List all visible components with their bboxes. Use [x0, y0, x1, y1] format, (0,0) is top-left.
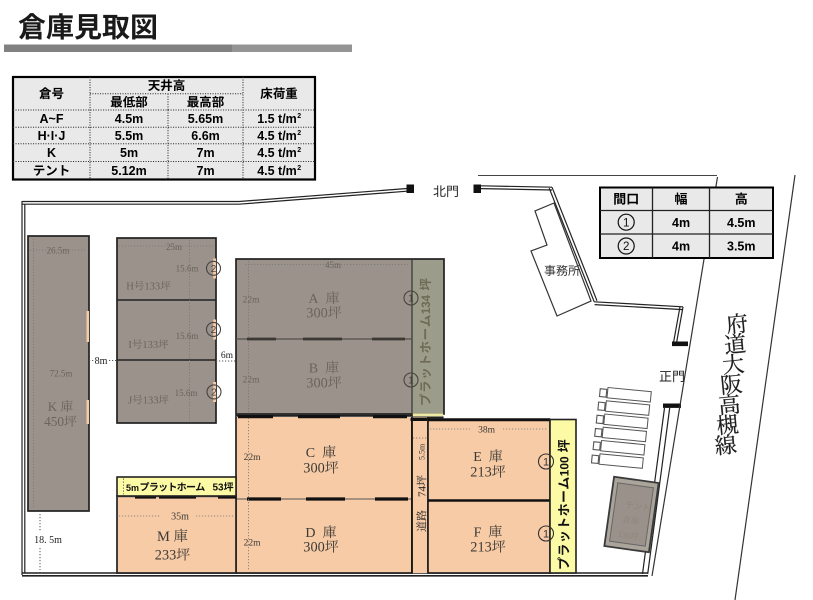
svg-text:233: 233 [155, 548, 176, 564]
svg-text:450: 450 [44, 414, 64, 429]
svg-text:M: M [157, 529, 170, 545]
svg-text:4.5m: 4.5m [727, 216, 756, 230]
svg-text:100: 100 [558, 456, 572, 476]
svg-text:8m: 8m [95, 356, 108, 367]
svg-text:35m: 35m [171, 512, 189, 523]
svg-text:38m: 38m [478, 426, 496, 436]
svg-text:4.5 t/m: 4.5 t/m [257, 164, 297, 178]
svg-text:15.6m: 15.6m [175, 388, 198, 398]
svg-text:I: I [128, 340, 132, 351]
svg-text:3.5m: 3.5m [727, 240, 756, 254]
svg-text:2: 2 [297, 130, 301, 137]
svg-text:15.6m: 15.6m [176, 264, 199, 274]
svg-text:300: 300 [303, 461, 324, 477]
svg-text:4.5m: 4.5m [115, 112, 144, 126]
svg-text:2: 2 [297, 113, 301, 120]
svg-text:5m: 5m [126, 483, 139, 493]
svg-text:4m: 4m [672, 216, 690, 230]
svg-text:H·I·J: H·I·J [38, 129, 66, 143]
svg-text:6m: 6m [221, 351, 234, 361]
svg-text:J: J [128, 396, 132, 407]
svg-text:22m: 22m [243, 376, 261, 386]
svg-text:130: 130 [617, 529, 631, 541]
svg-text:213: 213 [470, 465, 491, 481]
svg-text:22m: 22m [244, 539, 262, 549]
svg-text:5.5m: 5.5m [418, 443, 427, 460]
svg-text:A~F: A~F [40, 112, 64, 126]
svg-text:300: 300 [306, 306, 327, 322]
svg-text:134: 134 [421, 294, 433, 314]
svg-text:53: 53 [213, 483, 225, 494]
svg-text:1: 1 [623, 216, 629, 229]
svg-text:H: H [126, 282, 134, 293]
svg-text:300: 300 [303, 540, 324, 556]
svg-text:2: 2 [297, 147, 301, 154]
svg-text:25m: 25m [166, 242, 182, 252]
svg-text:133: 133 [142, 340, 158, 351]
svg-text:7m: 7m [197, 164, 215, 178]
svg-text:2: 2 [297, 165, 301, 172]
svg-text:133: 133 [143, 396, 159, 407]
svg-text:1: 1 [408, 294, 414, 305]
svg-text:K: K [47, 146, 56, 160]
svg-text:4.5 t/m: 4.5 t/m [257, 146, 297, 160]
svg-text:26.5m: 26.5m [47, 246, 70, 256]
svg-text:15.6m: 15.6m [176, 331, 199, 341]
svg-text:5.65m: 5.65m [188, 112, 223, 126]
svg-text:1: 1 [543, 528, 549, 540]
svg-text:1: 1 [408, 376, 414, 387]
svg-text:5.12m: 5.12m [111, 164, 146, 178]
svg-text:4.5 t/m: 4.5 t/m [257, 129, 297, 143]
svg-text:45m: 45m [325, 260, 341, 270]
svg-text:2: 2 [211, 264, 217, 275]
svg-text:1: 1 [543, 456, 549, 468]
svg-text:18. 5m: 18. 5m [34, 535, 62, 546]
svg-text:2: 2 [211, 388, 217, 399]
svg-text:7m: 7m [197, 146, 215, 160]
svg-text:F: F [474, 526, 482, 541]
svg-text:1.5 t/m: 1.5 t/m [257, 112, 297, 126]
svg-text:5.5m: 5.5m [115, 129, 144, 143]
svg-text:K: K [48, 399, 58, 414]
svg-text:22m: 22m [243, 296, 261, 306]
svg-text:E: E [473, 450, 482, 465]
svg-text:72.5m: 72.5m [50, 369, 73, 379]
svg-text:C: C [306, 446, 315, 461]
svg-text:6.6m: 6.6m [191, 129, 220, 143]
svg-text:5m: 5m [120, 146, 138, 160]
svg-text:300: 300 [306, 376, 327, 392]
svg-text:4m: 4m [672, 240, 690, 254]
svg-text:133: 133 [144, 282, 160, 293]
svg-text:74: 74 [417, 486, 429, 498]
svg-text:213: 213 [470, 540, 491, 556]
svg-text:2: 2 [211, 325, 217, 336]
svg-text:2: 2 [623, 240, 629, 253]
svg-text:22m: 22m [244, 453, 262, 463]
svg-text:B: B [309, 362, 318, 377]
